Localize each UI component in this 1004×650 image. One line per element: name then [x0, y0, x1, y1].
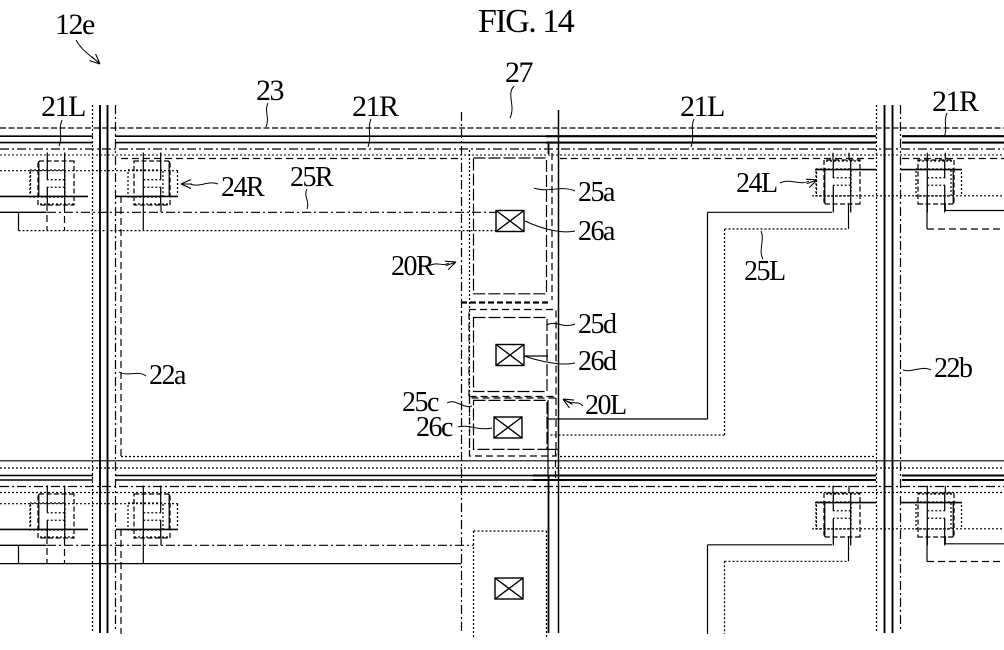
svg-text:25a: 25a: [578, 177, 616, 208]
svg-text:21L: 21L: [41, 90, 85, 123]
svg-text:FIG. 14: FIG. 14: [478, 3, 575, 40]
svg-text:27: 27: [505, 56, 534, 89]
svg-text:20L: 20L: [585, 390, 626, 421]
svg-text:12e: 12e: [55, 8, 95, 41]
svg-text:26a: 26a: [578, 216, 616, 247]
svg-text:21L: 21L: [680, 90, 724, 123]
svg-text:24L: 24L: [736, 168, 777, 199]
svg-text:25R: 25R: [290, 162, 334, 193]
svg-text:25L: 25L: [744, 256, 785, 287]
svg-text:20R: 20R: [391, 251, 435, 282]
svg-text:21R: 21R: [932, 85, 979, 118]
svg-text:26c: 26c: [416, 412, 453, 443]
svg-text:23: 23: [256, 74, 284, 107]
svg-text:25d: 25d: [578, 309, 617, 340]
svg-text:26d: 26d: [578, 346, 617, 377]
svg-text:22a: 22a: [149, 360, 187, 391]
svg-text:24R: 24R: [221, 172, 265, 203]
svg-text:21R: 21R: [352, 90, 399, 123]
svg-text:22b: 22b: [934, 353, 972, 384]
